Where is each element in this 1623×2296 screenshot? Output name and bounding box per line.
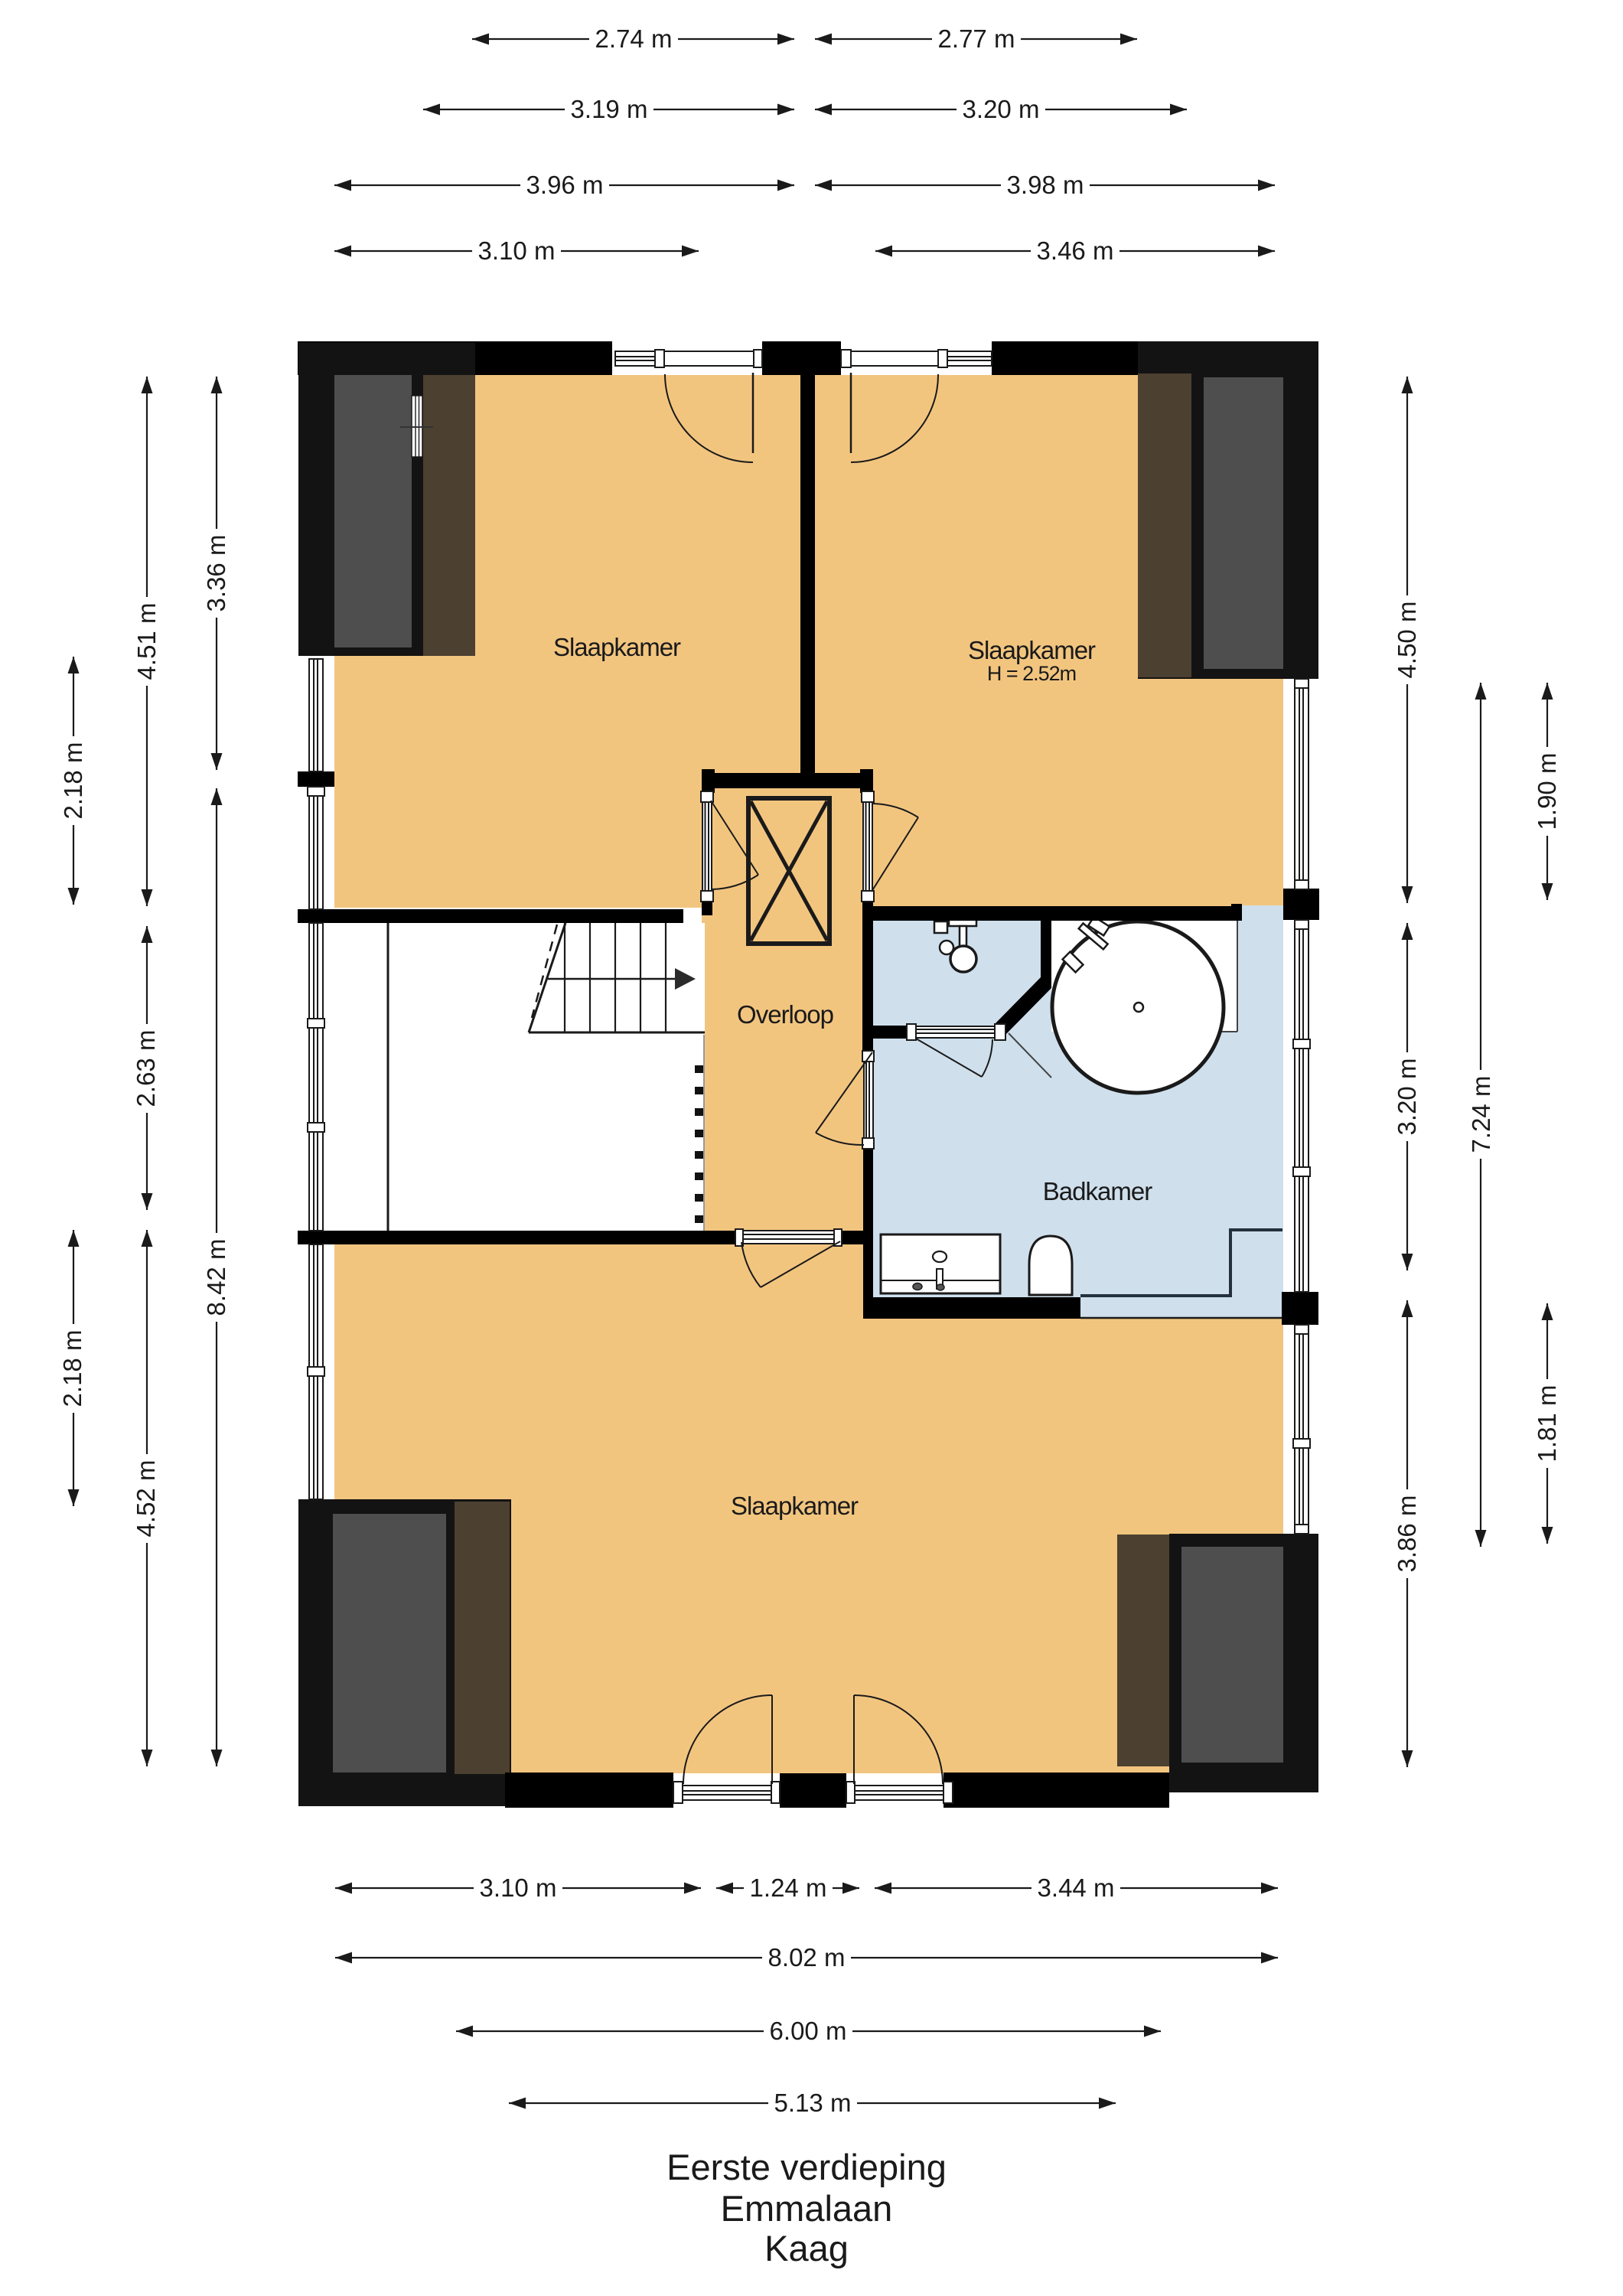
svg-text:3.20 m: 3.20 m (1393, 1058, 1421, 1136)
svg-text:3.36 m: 3.36 m (202, 535, 230, 612)
svg-text:Slaapkamer: Slaapkamer (968, 636, 1096, 664)
svg-text:4.51 m: 4.51 m (132, 603, 161, 680)
svg-text:2.63 m: 2.63 m (132, 1030, 160, 1107)
svg-text:3.86 m: 3.86 m (1393, 1495, 1421, 1573)
svg-text:3.98 m: 3.98 m (1007, 171, 1084, 199)
svg-text:3.96 m: 3.96 m (526, 171, 604, 199)
svg-text:8.02 m: 8.02 m (768, 1943, 846, 1971)
svg-text:1.24 m: 1.24 m (750, 1874, 827, 1902)
svg-text:Overloop: Overloop (737, 1000, 833, 1029)
svg-text:2.18 m: 2.18 m (59, 742, 87, 820)
svg-text:4.50 m: 4.50 m (1393, 602, 1421, 679)
svg-text:4.52 m: 4.52 m (132, 1460, 160, 1538)
svg-text:Slaapkamer: Slaapkamer (731, 1492, 859, 1520)
svg-text:7.24 m: 7.24 m (1467, 1076, 1495, 1153)
svg-text:8.42 m: 8.42 m (202, 1239, 230, 1316)
svg-text:3.19 m: 3.19 m (571, 95, 648, 123)
svg-text:H = 2.52m: H = 2.52m (987, 662, 1076, 685)
svg-text:Emmalaan: Emmalaan (721, 2188, 893, 2229)
svg-text:3.20 m: 3.20 m (963, 95, 1040, 123)
svg-text:Badkamer: Badkamer (1043, 1177, 1152, 1205)
svg-text:2.74 m: 2.74 m (595, 24, 673, 53)
svg-text:6.00 m: 6.00 m (770, 2017, 847, 2045)
svg-text:Kaag: Kaag (764, 2228, 849, 2268)
svg-text:3.44 m: 3.44 m (1038, 1874, 1115, 1902)
svg-text:Slaapkamer: Slaapkamer (553, 633, 681, 661)
svg-text:5.13 m: 5.13 m (774, 2089, 852, 2117)
svg-text:3.10 m: 3.10 m (480, 1874, 557, 1902)
svg-text:2.77 m: 2.77 m (938, 24, 1015, 53)
svg-text:1.81 m: 1.81 m (1533, 1385, 1561, 1463)
svg-text:3.46 m: 3.46 m (1037, 236, 1114, 265)
svg-text:3.10 m: 3.10 m (478, 236, 556, 265)
svg-text:Eerste verdieping: Eerste verdieping (666, 2147, 947, 2187)
svg-text:1.90 m: 1.90 m (1533, 753, 1561, 830)
svg-text:2.18 m: 2.18 m (58, 1330, 86, 1407)
